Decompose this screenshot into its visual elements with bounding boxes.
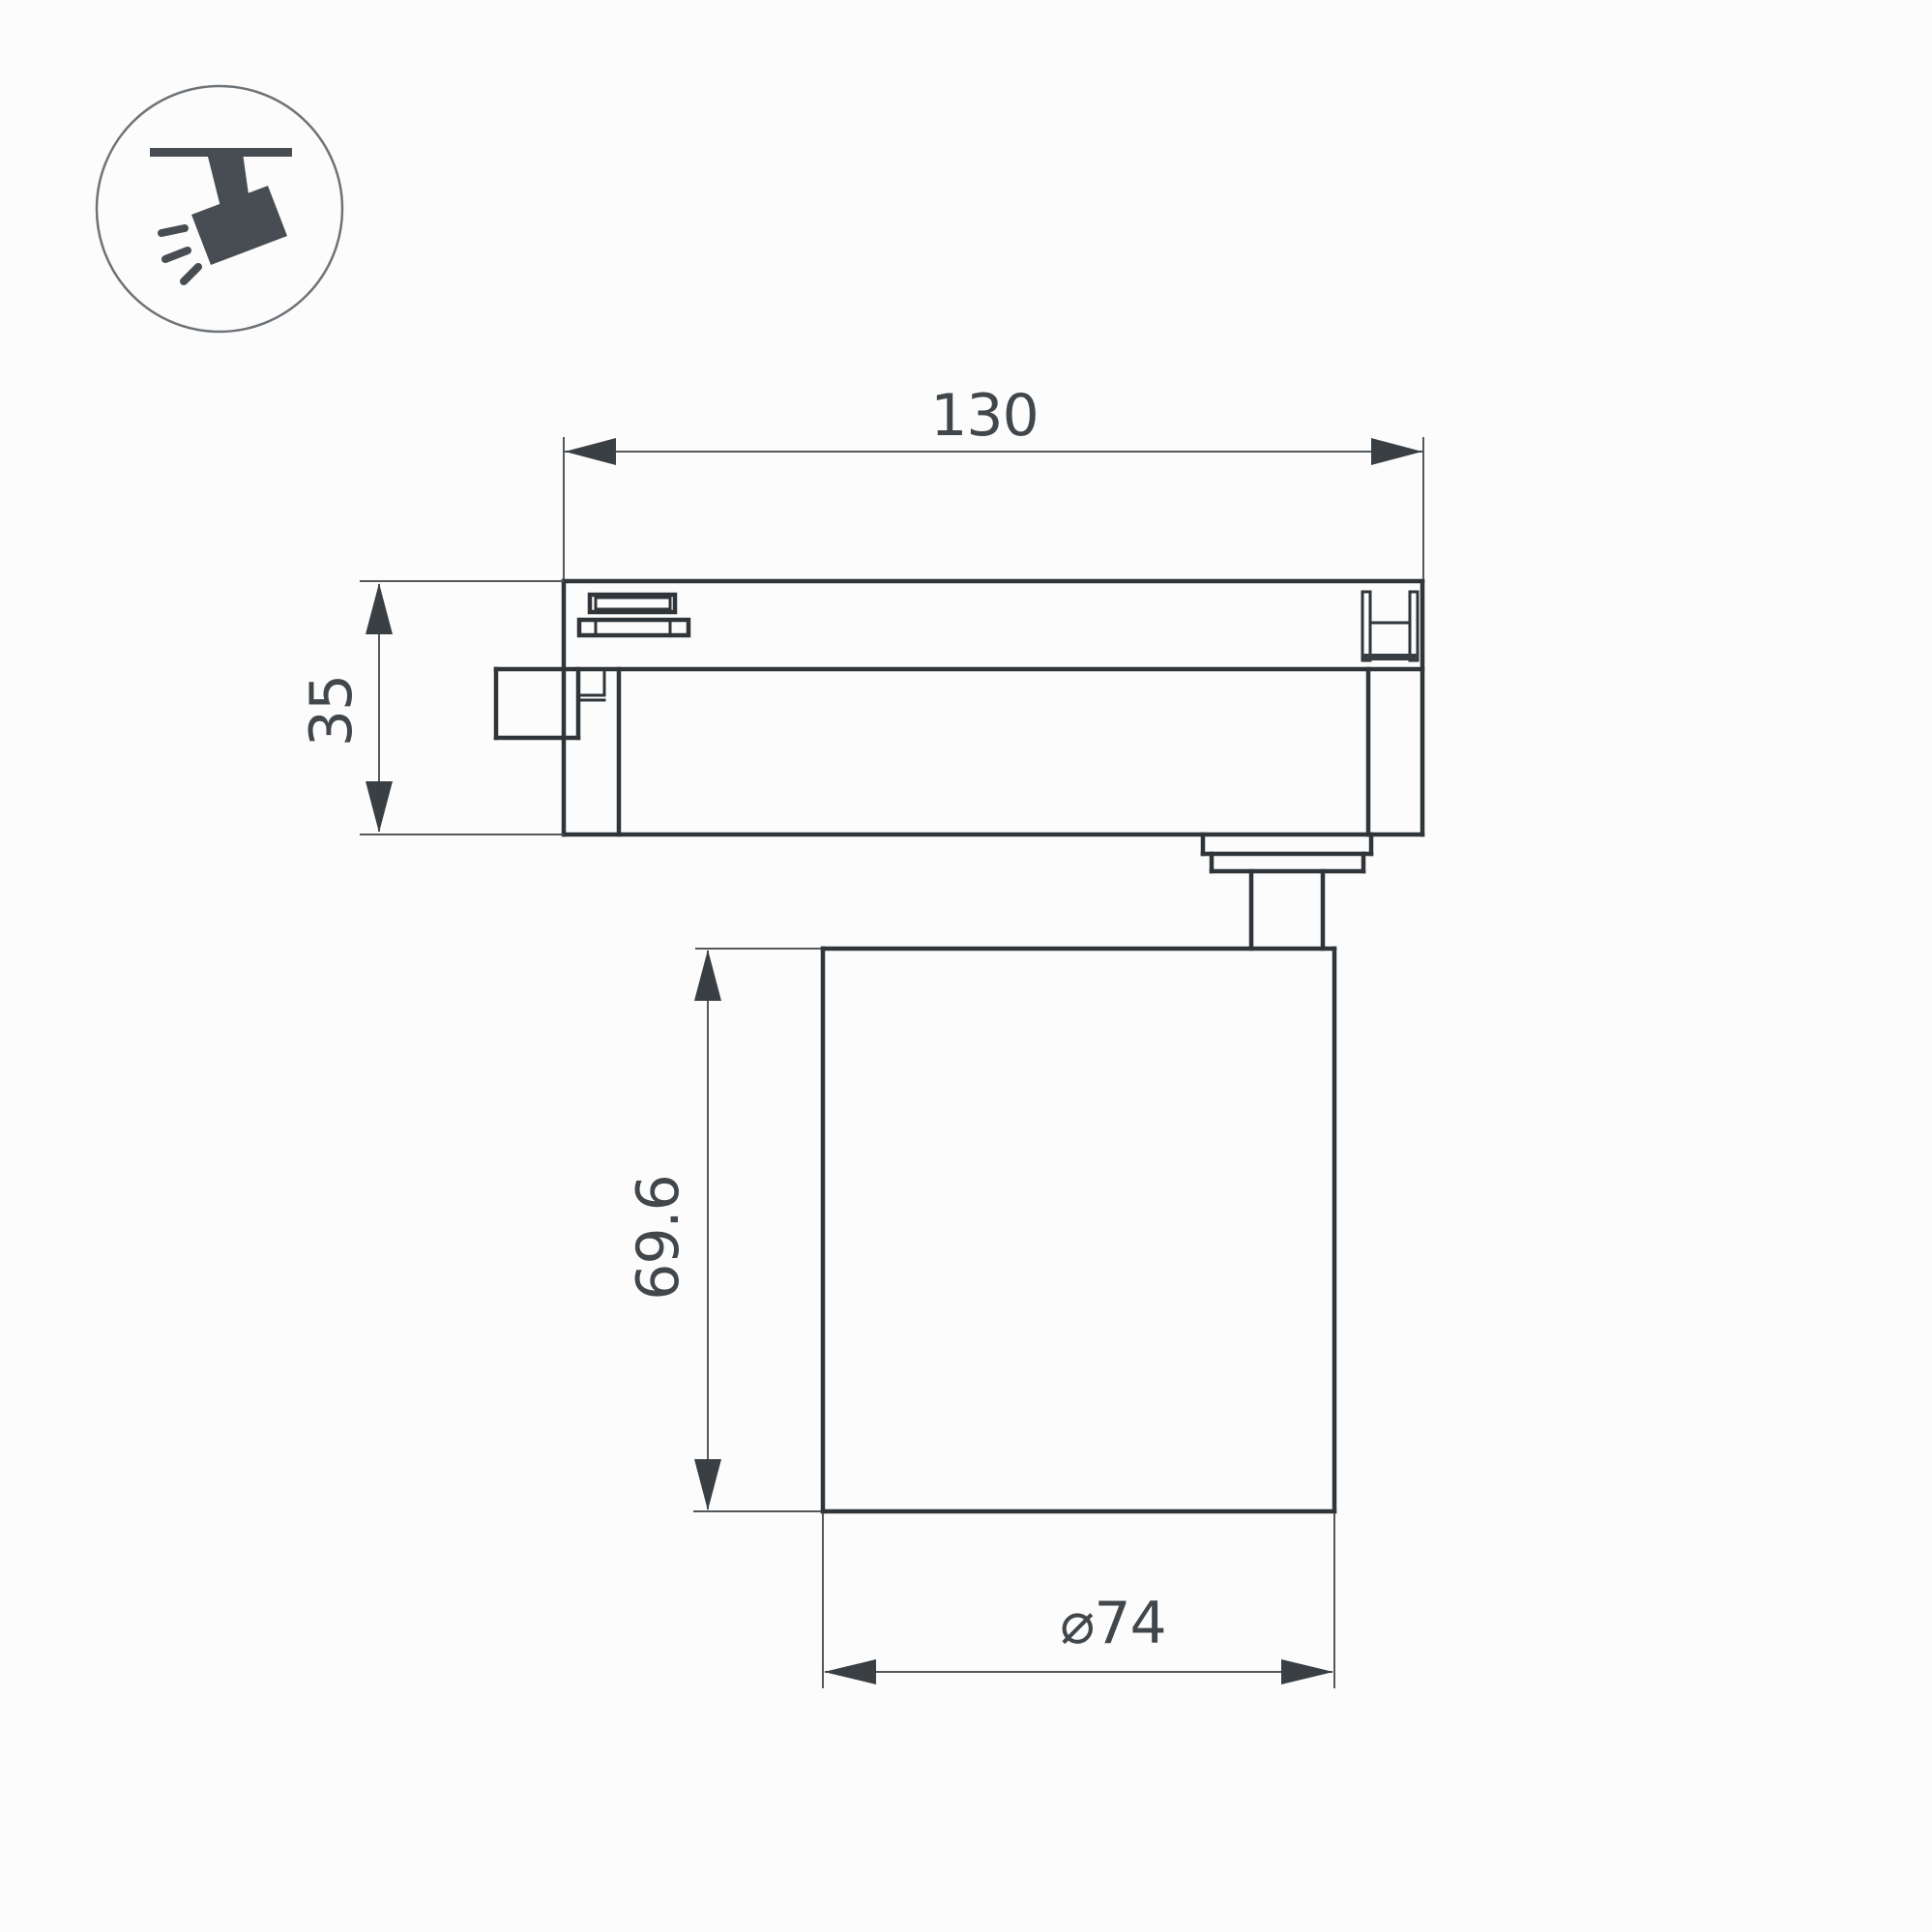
dimension-label-adapter-length: 130 [930, 382, 1039, 450]
drawing-canvas: 130 35 69.6 ⌀74 [0, 0, 1932, 1932]
dimension-label-adapter-height: 35 [298, 675, 366, 746]
arrowhead-left [565, 438, 616, 465]
arrowhead-left [824, 1659, 876, 1684]
adapter-contacts [579, 595, 688, 635]
dimension-body-diameter: ⌀74 [823, 1513, 1334, 1688]
adapter-flange [1203, 834, 1371, 949]
fixture-side-view [496, 581, 1422, 1511]
arrowhead-right [1281, 1659, 1333, 1684]
arrowhead-down [366, 781, 393, 833]
dimension-label-body-diameter: ⌀74 [1060, 1590, 1165, 1657]
technical-drawing: 130 35 69.6 ⌀74 [0, 0, 1932, 1932]
arrowhead-up [366, 583, 393, 634]
track-spotlight-icon [97, 86, 342, 332]
arrowhead-down [694, 1459, 721, 1510]
dimension-adapter-length: 130 [564, 382, 1423, 579]
adapter-lock-lever [496, 669, 604, 738]
arrowhead-right [1371, 438, 1422, 465]
dimension-body-height: 69.6 [625, 949, 821, 1511]
lamp-body [823, 949, 1334, 1511]
track-adapter [496, 581, 1422, 834]
adapter-clip [1362, 592, 1418, 660]
icon-light-ray [161, 228, 185, 233]
dimension-label-body-height: 69.6 [625, 1175, 692, 1301]
arrowhead-up [694, 950, 721, 1001]
dimension-adapter-height: 35 [298, 581, 564, 834]
